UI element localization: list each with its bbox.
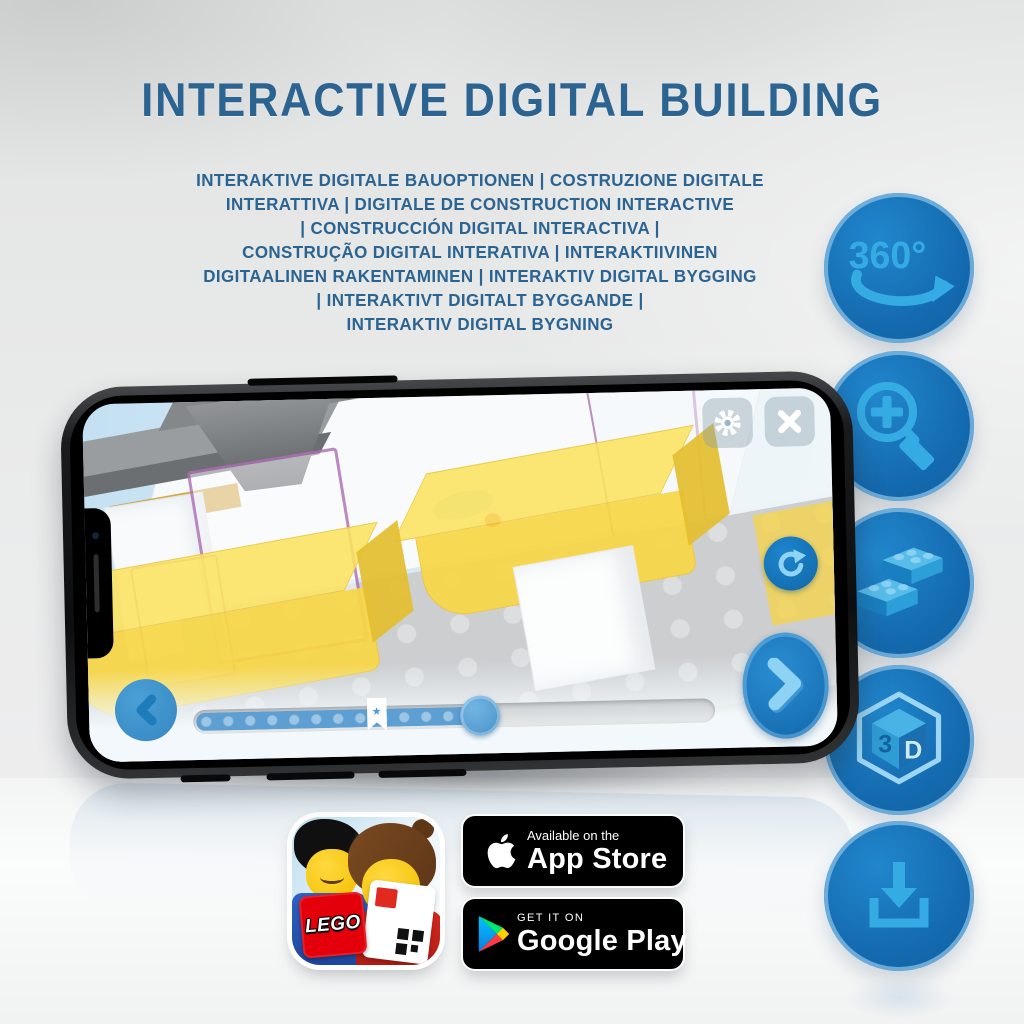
instruction-booklet [361,879,436,964]
smartphone: ★ [60,370,861,780]
feature-360-rotation: 360° [824,193,974,343]
subtitle-line: DIGITAALINEN RAKENTAMINEN | INTERAKTIV D… [73,264,888,288]
phone-mute-switch [180,774,230,782]
apple-logo-icon [477,831,521,871]
earpiece-speaker [93,554,99,612]
page-title: INTERACTIVE DIGITAL BUILDING [0,72,1024,127]
star-icon: ★ [372,706,382,718]
subtitle-line: | CONSTRUCCIÓN DIGITAL INTERACTIVA | [73,216,888,240]
multilingual-subtitle: INTERAKTIVE DIGITALE BAUOPTIONEN | COSTR… [60,168,900,336]
zoom-in-icon [849,376,949,476]
lego-logo: LEGO [298,891,367,958]
rotate-icon [773,546,808,581]
chevron-left-icon [131,693,162,728]
subtitle-line: INTERATTIVA | DIGITALE DE CONSTRUCTION I… [73,192,888,216]
progress-fill [196,707,483,732]
feature-download [824,821,974,971]
lego-logo-text: LEGO [304,912,362,939]
app-store-name: App Store [527,843,669,875]
subtitle-line: INTERAKTIVE DIGITALE BAUOPTIONEN | COSTR… [73,168,888,192]
close-icon [775,407,804,436]
marketing-panel: INTERACTIVE DIGITAL BUILDING INTERAKTIVE… [0,0,1024,1024]
lego-app-icon[interactable]: LEGO [292,817,440,965]
brick-icon [847,531,951,635]
google-play-name: Google Play [517,925,687,957]
circle-reflection [832,972,968,1024]
app-store-badge-text: Available on the App Store [521,828,669,875]
front-camera [92,532,99,539]
chevron-right-icon [764,657,807,714]
app-store-tagline: Available on the [527,828,669,843]
download-icon [849,846,949,946]
close-button[interactable] [764,396,815,447]
phone-reflection [69,782,856,928]
page-title-text: INTERACTIVE DIGITAL BUILDING [141,72,883,127]
subtitle-line: CONSTRUÇÃO DIGITAL INTERATIVA | INTERAKT… [73,240,888,264]
google-play-badge[interactable]: GET IT ON Google Play [463,899,683,969]
google-play-logo-icon [477,915,511,953]
3d-cube-icon: 3 D [847,688,951,792]
phone-notch [82,508,114,659]
phone-screen: ★ [82,388,838,763]
google-play-tagline: GET IT ON [517,911,687,925]
subtitle-line: INTERAKTIV DIGITAL BYGNING [73,312,888,336]
svg-text:360°: 360° [849,234,927,276]
minifigure-boy-smile [320,871,344,884]
settings-button[interactable] [702,397,753,448]
google-play-badge-text: GET IT ON Google Play [511,911,687,957]
subtitle-line: | INTERAKTIVT DIGITALT BYGGANDE | [73,288,888,312]
svg-text:3: 3 [878,730,892,758]
gear-icon [710,406,745,441]
qr-code [395,928,424,957]
svg-text:D: D [904,737,922,765]
360-rotation-icon: 360° [840,225,958,311]
app-store-badge[interactable]: Available on the App Store [463,816,683,886]
booklet-red-square [375,887,398,908]
